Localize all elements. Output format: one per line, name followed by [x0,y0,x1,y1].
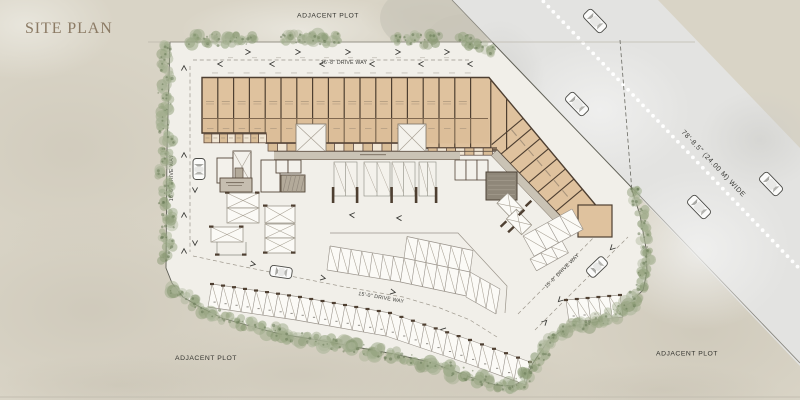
svg-text:ADJACENT PLOT: ADJACENT PLOT [297,13,359,20]
svg-text:ADJACENT PLOT: ADJACENT PLOT [175,355,237,362]
svg-text:SITE PLAN: SITE PLAN [25,20,113,37]
svg-text:ADJACENT PLOT: ADJACENT PLOT [656,351,718,358]
svg-text:16'-8" DRIVE WAY: 16'-8" DRIVE WAY [321,60,368,66]
